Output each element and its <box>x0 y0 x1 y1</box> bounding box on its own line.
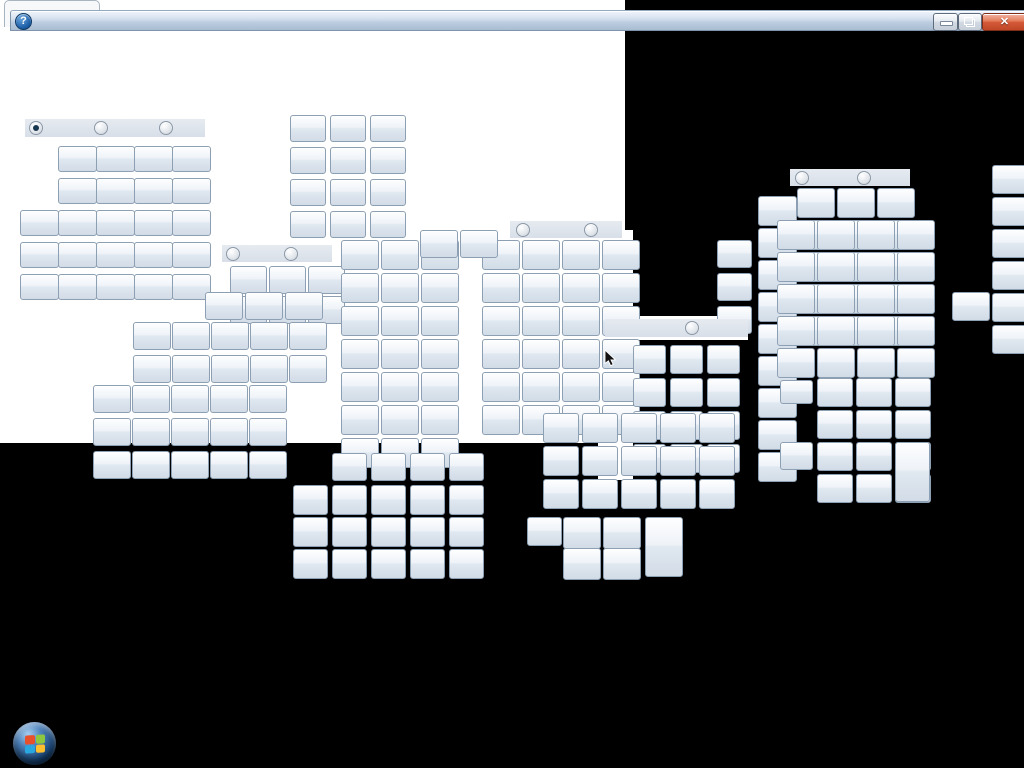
blank-button[interactable] <box>856 442 892 471</box>
blank-button[interactable] <box>371 517 406 547</box>
blank-button[interactable] <box>543 479 579 509</box>
blank-button[interactable] <box>857 284 895 314</box>
blank-button[interactable] <box>482 306 520 336</box>
blank-button[interactable] <box>645 517 683 577</box>
blank-button[interactable] <box>172 146 211 172</box>
blank-button[interactable] <box>897 316 935 346</box>
blank-button[interactable] <box>370 179 406 206</box>
blank-button[interactable] <box>410 517 445 547</box>
blank-button[interactable] <box>670 378 703 407</box>
blank-button[interactable] <box>522 273 560 303</box>
blank-button[interactable] <box>562 339 600 369</box>
blank-button[interactable] <box>230 266 267 294</box>
blank-button[interactable] <box>543 446 579 476</box>
blank-button[interactable] <box>20 242 59 268</box>
blank-button[interactable] <box>381 273 419 303</box>
window-titlebar[interactable]: ? ✕ <box>10 10 1024 31</box>
blank-button[interactable] <box>563 517 601 549</box>
blank-button[interactable] <box>699 479 735 509</box>
blank-button[interactable] <box>293 517 328 547</box>
minimize-button[interactable] <box>933 13 958 31</box>
blank-button[interactable] <box>330 211 366 238</box>
blank-button[interactable] <box>707 345 740 374</box>
blank-button[interactable] <box>410 549 445 579</box>
blank-button[interactable] <box>381 372 419 402</box>
blank-button[interactable] <box>522 372 560 402</box>
blank-button[interactable] <box>817 378 853 407</box>
blank-button[interactable] <box>341 306 379 336</box>
blank-button[interactable] <box>172 242 211 268</box>
blank-button[interactable] <box>857 348 895 378</box>
blank-button[interactable] <box>449 549 484 579</box>
blank-button[interactable] <box>171 385 209 413</box>
blank-button[interactable] <box>449 453 484 481</box>
blank-button[interactable] <box>211 355 249 383</box>
blank-button[interactable] <box>817 316 855 346</box>
blank-button[interactable] <box>134 146 173 172</box>
blank-button[interactable] <box>293 549 328 579</box>
blank-button[interactable] <box>58 146 97 172</box>
blank-button[interactable] <box>660 446 696 476</box>
blank-button[interactable] <box>582 413 618 443</box>
blank-button[interactable] <box>421 339 459 369</box>
blank-button[interactable] <box>381 306 419 336</box>
blank-button[interactable] <box>777 316 815 346</box>
blank-button[interactable] <box>250 355 288 383</box>
blank-button[interactable] <box>133 322 171 350</box>
blank-button[interactable] <box>897 284 935 314</box>
blank-button[interactable] <box>371 453 406 481</box>
radio-button[interactable] <box>94 121 108 135</box>
blank-button[interactable] <box>330 147 366 174</box>
blank-button[interactable] <box>371 485 406 515</box>
radio-button[interactable] <box>516 223 530 237</box>
blank-button[interactable] <box>602 273 640 303</box>
blank-button[interactable] <box>330 179 366 206</box>
blank-button[interactable] <box>20 210 59 236</box>
blank-button[interactable] <box>895 442 930 502</box>
blank-button[interactable] <box>341 240 379 270</box>
blank-button[interactable] <box>992 197 1024 226</box>
blank-button[interactable] <box>341 339 379 369</box>
blank-button[interactable] <box>134 210 173 236</box>
blank-button[interactable] <box>93 418 131 446</box>
radio-button[interactable] <box>857 171 871 185</box>
blank-button[interactable] <box>543 413 579 443</box>
blank-button[interactable] <box>582 479 618 509</box>
blank-button[interactable] <box>58 242 97 268</box>
blank-button[interactable] <box>562 240 600 270</box>
blank-button[interactable] <box>20 274 59 300</box>
blank-button[interactable] <box>856 474 892 503</box>
blank-button[interactable] <box>290 147 326 174</box>
blank-button[interactable] <box>172 322 210 350</box>
blank-button[interactable] <box>817 410 853 439</box>
blank-button[interactable] <box>633 345 666 374</box>
radio-group-bar <box>605 319 748 337</box>
mouse-cursor <box>604 350 618 368</box>
blank-button[interactable] <box>603 517 641 549</box>
blank-button[interactable] <box>603 548 641 580</box>
help-icon-glyph: ? <box>20 15 27 27</box>
blank-button[interactable] <box>134 274 173 300</box>
blank-button[interactable] <box>877 188 915 218</box>
blank-button[interactable] <box>897 252 935 282</box>
blank-button[interactable] <box>58 274 97 300</box>
blank-button[interactable] <box>290 179 326 206</box>
blank-button[interactable] <box>449 485 484 515</box>
blank-button[interactable] <box>172 210 211 236</box>
blank-button[interactable] <box>952 292 990 321</box>
blank-button[interactable] <box>992 325 1024 354</box>
help-icon[interactable]: ? <box>15 13 32 30</box>
blank-button[interactable] <box>777 348 815 378</box>
radio-button[interactable] <box>685 321 699 335</box>
blank-button[interactable] <box>96 242 135 268</box>
blank-button[interactable] <box>93 385 131 413</box>
blank-button[interactable] <box>522 240 560 270</box>
blank-button[interactable] <box>856 410 892 439</box>
blank-button[interactable] <box>562 273 600 303</box>
blank-button[interactable] <box>205 292 243 320</box>
blank-button[interactable] <box>249 418 287 446</box>
blank-button[interactable] <box>856 378 892 407</box>
blank-button[interactable] <box>562 306 600 336</box>
blank-button[interactable] <box>293 485 328 515</box>
blank-button[interactable] <box>780 442 813 470</box>
blank-button[interactable] <box>289 322 327 350</box>
blank-button[interactable] <box>992 293 1024 322</box>
blank-button[interactable] <box>707 378 740 407</box>
blank-button[interactable] <box>341 273 379 303</box>
blank-button[interactable] <box>410 453 445 481</box>
blank-button[interactable] <box>421 405 459 435</box>
blank-button[interactable] <box>308 266 345 294</box>
blank-button[interactable] <box>96 210 135 236</box>
blank-button[interactable] <box>897 220 935 250</box>
blank-button[interactable] <box>449 517 484 547</box>
blank-button[interactable] <box>133 355 171 383</box>
blank-button[interactable] <box>420 230 458 258</box>
close-button[interactable]: ✕ <box>982 13 1024 31</box>
blank-button[interactable] <box>563 548 601 580</box>
blank-button[interactable] <box>332 517 367 547</box>
blank-button[interactable] <box>290 211 326 238</box>
blank-button[interactable] <box>817 252 855 282</box>
blank-button[interactable] <box>797 188 835 218</box>
blank-button[interactable] <box>285 292 323 320</box>
blank-button[interactable] <box>633 378 666 407</box>
blank-button[interactable] <box>421 273 459 303</box>
radio-group-bar <box>222 245 332 262</box>
blank-button[interactable] <box>895 378 931 407</box>
blank-button[interactable] <box>211 322 249 350</box>
blank-button[interactable] <box>381 405 419 435</box>
blank-button[interactable] <box>370 115 406 142</box>
blank-button[interactable] <box>58 178 97 204</box>
blank-button[interactable] <box>460 230 498 258</box>
blank-button[interactable] <box>58 210 97 236</box>
radio-group-bar <box>25 119 205 137</box>
radio-button[interactable] <box>226 247 240 261</box>
blank-button[interactable] <box>210 451 248 479</box>
blank-button[interactable] <box>621 446 657 476</box>
blank-button[interactable] <box>992 261 1024 290</box>
blank-button[interactable] <box>330 115 366 142</box>
blank-button[interactable] <box>249 385 287 413</box>
blank-button[interactable] <box>817 348 855 378</box>
blank-button[interactable] <box>132 418 170 446</box>
blank-button[interactable] <box>482 405 520 435</box>
blank-button[interactable] <box>717 240 752 268</box>
blank-button[interactable] <box>699 446 735 476</box>
blank-button[interactable] <box>132 385 170 413</box>
blank-button[interactable] <box>421 372 459 402</box>
blank-button[interactable] <box>421 306 459 336</box>
blank-button[interactable] <box>562 372 600 402</box>
blank-button[interactable] <box>134 242 173 268</box>
blank-button[interactable] <box>857 220 895 250</box>
blank-button[interactable] <box>210 418 248 446</box>
blank-button[interactable] <box>132 451 170 479</box>
blank-button[interactable] <box>780 380 813 404</box>
radio-button[interactable] <box>159 121 173 135</box>
blank-button[interactable] <box>245 292 283 320</box>
blank-button[interactable] <box>582 446 618 476</box>
blank-button[interactable] <box>522 339 560 369</box>
blank-button[interactable] <box>602 240 640 270</box>
blank-button[interactable] <box>172 178 211 204</box>
blank-button[interactable] <box>777 220 815 250</box>
blank-button[interactable] <box>341 405 379 435</box>
blank-button[interactable] <box>992 165 1024 194</box>
blank-button[interactable] <box>93 451 131 479</box>
blank-button[interactable] <box>249 451 287 479</box>
blank-button[interactable] <box>96 274 135 300</box>
blank-button[interactable] <box>290 115 326 142</box>
blank-button[interactable] <box>341 372 379 402</box>
blank-button[interactable] <box>482 372 520 402</box>
blank-button[interactable] <box>96 178 135 204</box>
blank-button[interactable] <box>171 418 209 446</box>
desktop: ? ✕ <box>0 0 1024 768</box>
blank-button[interactable] <box>332 453 367 481</box>
blank-button[interactable] <box>837 188 875 218</box>
minimize-icon <box>940 21 953 26</box>
blank-button[interactable] <box>332 485 367 515</box>
blank-button[interactable] <box>717 273 752 301</box>
blank-button[interactable] <box>621 479 657 509</box>
blank-button[interactable] <box>381 339 419 369</box>
blank-button[interactable] <box>817 220 855 250</box>
blank-button[interactable] <box>621 413 657 443</box>
blank-button[interactable] <box>817 284 855 314</box>
blank-button[interactable] <box>482 273 520 303</box>
blank-button[interactable] <box>370 147 406 174</box>
blank-button[interactable] <box>172 355 210 383</box>
blank-button[interactable] <box>897 348 935 378</box>
restore-icon <box>964 17 973 25</box>
blank-button[interactable] <box>857 316 895 346</box>
blank-button[interactable] <box>857 252 895 282</box>
blank-button[interactable] <box>992 229 1024 258</box>
blank-button[interactable] <box>332 549 367 579</box>
blank-button[interactable] <box>670 345 703 374</box>
start-button[interactable] <box>13 722 56 765</box>
blank-button[interactable] <box>371 549 406 579</box>
blank-button[interactable] <box>895 410 931 439</box>
restore-button[interactable] <box>958 13 982 31</box>
blank-button[interactable] <box>699 413 735 443</box>
blank-button[interactable] <box>777 252 815 282</box>
radio-button[interactable] <box>795 171 809 185</box>
radio-button[interactable] <box>284 247 298 261</box>
radio-group-bar <box>510 221 622 238</box>
blank-button[interactable] <box>96 146 135 172</box>
blank-button[interactable] <box>482 339 520 369</box>
blank-button[interactable] <box>381 240 419 270</box>
radio-button[interactable] <box>29 121 43 135</box>
blank-button[interactable] <box>210 385 248 413</box>
radio-group-bar <box>790 169 910 186</box>
blank-button[interactable] <box>171 451 209 479</box>
radio-button[interactable] <box>584 223 598 237</box>
blank-button[interactable] <box>817 442 853 471</box>
blank-button[interactable] <box>777 284 815 314</box>
blank-button[interactable] <box>269 266 306 294</box>
blank-button[interactable] <box>660 413 696 443</box>
blank-button[interactable] <box>660 479 696 509</box>
blank-button[interactable] <box>527 517 562 546</box>
blank-button[interactable] <box>289 355 327 383</box>
windows-flag-icon <box>25 734 45 753</box>
blank-button[interactable] <box>250 322 288 350</box>
blank-button[interactable] <box>817 474 853 503</box>
blank-button[interactable] <box>410 485 445 515</box>
blank-button[interactable] <box>522 306 560 336</box>
blank-button[interactable] <box>370 211 406 238</box>
blank-button[interactable] <box>134 178 173 204</box>
